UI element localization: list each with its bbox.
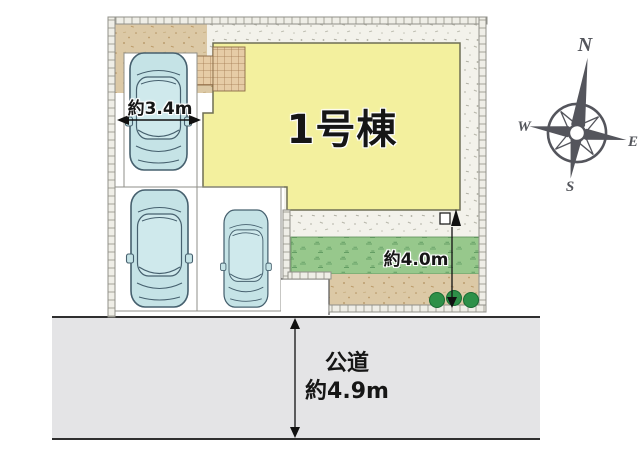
compass-rose-icon: [523, 51, 637, 185]
road-width-label: 約4.9m: [272, 378, 422, 406]
car-icon: [127, 190, 193, 307]
compass-east-label: E: [621, 134, 640, 151]
road-name: 公道: [272, 350, 422, 378]
garden-depth-label: 約4.0m: [366, 245, 466, 270]
compass-north-label: N: [573, 34, 597, 57]
compass-south-label: S: [558, 179, 582, 196]
compass-west-label: W: [512, 119, 536, 136]
road-label: 公道 約4.9m: [272, 350, 422, 406]
site-plan: 1号棟 約3.4m 約4.0m 公道 約4.9m N W E S: [0, 0, 640, 450]
gate-opening: [281, 279, 329, 315]
building-label: 1号棟: [242, 97, 442, 155]
parking-width-label: 約3.4m: [110, 94, 210, 119]
car-icon: [221, 210, 272, 307]
